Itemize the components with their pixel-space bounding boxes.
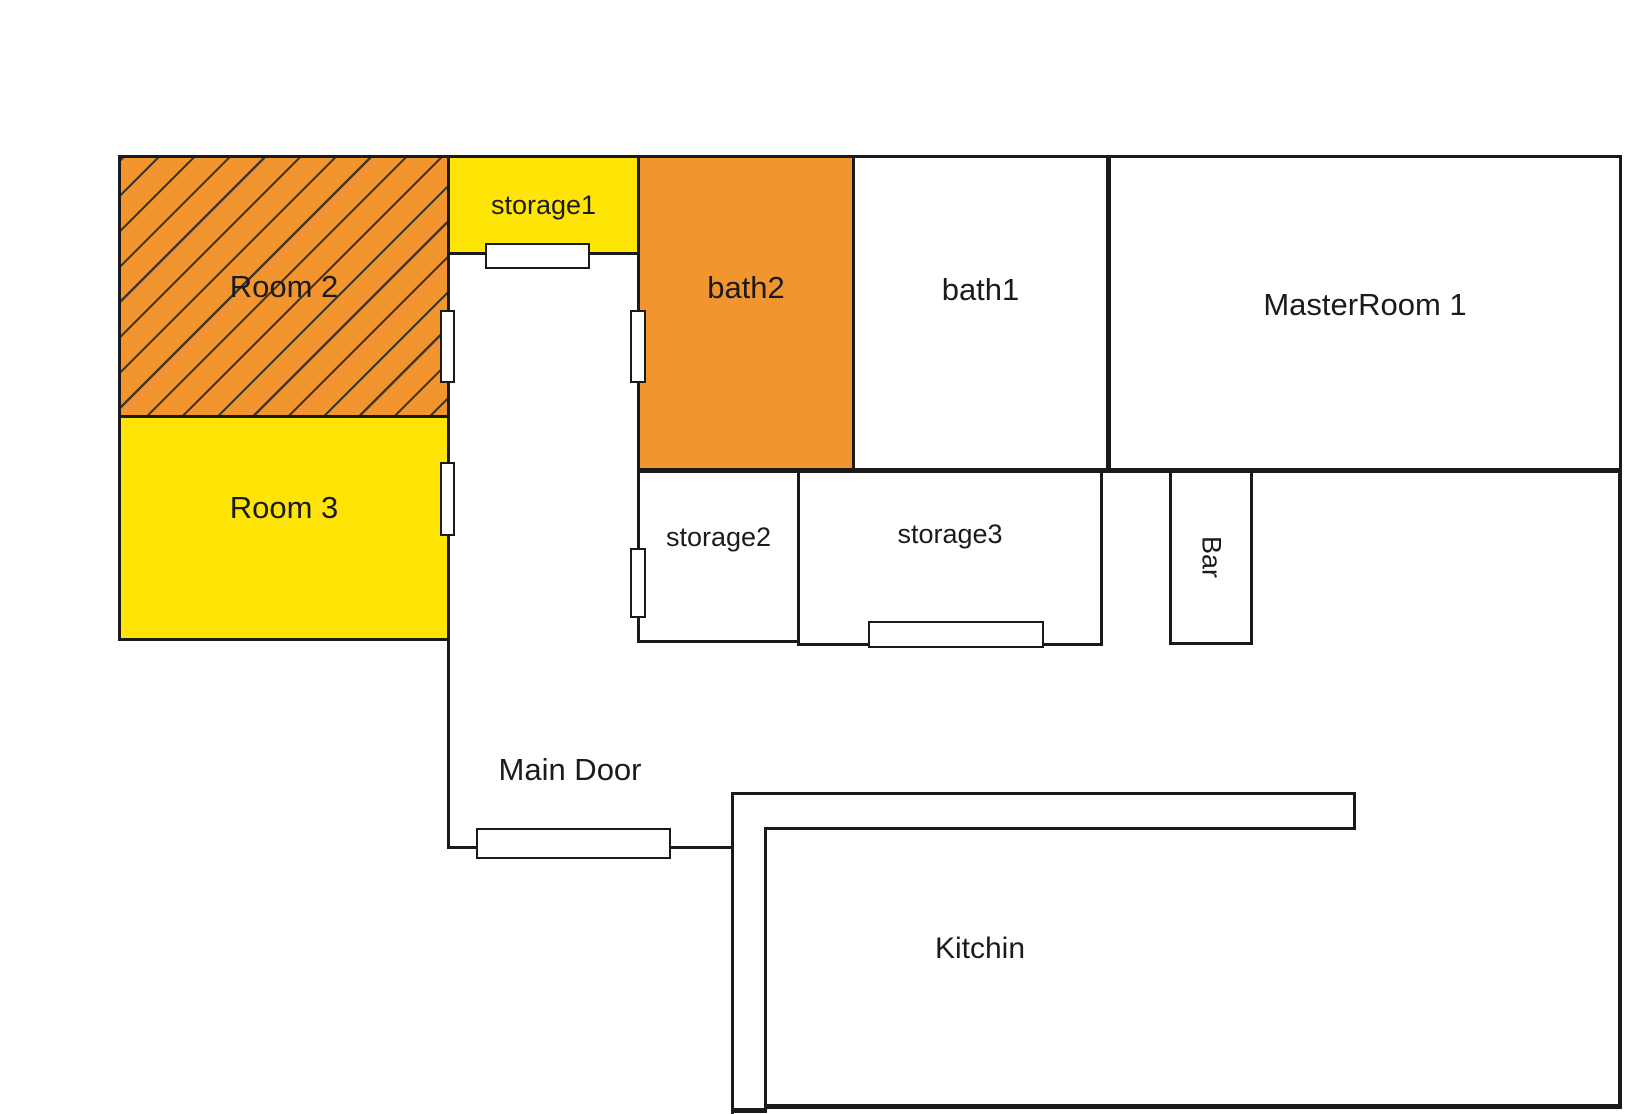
door-storage2: [630, 548, 646, 618]
masterroom1-label: MasterRoom 1: [1263, 287, 1466, 323]
room-storage1: storage1: [447, 155, 640, 255]
door-room2: [440, 310, 455, 383]
wall-kitchen-cap-right: [1353, 792, 1356, 830]
room-masterroom1: MasterRoom 1: [1106, 155, 1622, 473]
main-door-label: Main Door: [460, 752, 680, 788]
room-bath2: bath2: [637, 155, 855, 473]
room-bath1: bath1: [852, 155, 1109, 473]
room-bar: Bar: [1169, 470, 1253, 645]
room-storage2: storage2: [637, 470, 800, 643]
room2-label: Room 2: [230, 269, 339, 305]
bar-label: Bar: [1196, 536, 1227, 578]
bath2-label: bath2: [707, 270, 785, 306]
room3-label: Room 3: [230, 490, 339, 526]
door-bath2: [630, 310, 646, 383]
wall-kitchen-inner-left: [764, 827, 767, 1108]
wall-right-exterior: [1618, 470, 1622, 1108]
wall-kitchen-inner-top: [764, 827, 1356, 830]
room-storage3: storage3: [797, 470, 1103, 646]
door-main-entrance: [476, 828, 671, 859]
wall-kitchen-bottom: [764, 1104, 1622, 1109]
wall-kitchen-outer-top: [731, 792, 1356, 795]
room-room2: Room 2: [118, 155, 450, 418]
door-room3: [440, 462, 455, 536]
storage1-label: storage1: [491, 190, 596, 221]
wall-kitchen-cap-bottom: [731, 1108, 767, 1113]
door-storage1: [485, 243, 590, 269]
storage2-label: storage2: [666, 522, 771, 553]
kitchin-label: Kitchin: [870, 932, 1090, 966]
room-room3: Room 3: [118, 415, 450, 641]
door-storage3: [868, 621, 1044, 648]
wall-kitchen-outer-left: [731, 792, 734, 1114]
storage3-label: storage3: [897, 519, 1002, 550]
floor-plan: Room 2 Room 3 storage1 bath2 bath1 Maste…: [0, 0, 1626, 1114]
bath1-label: bath1: [942, 272, 1020, 308]
wall-south-of-bedrooms: [637, 468, 1622, 473]
